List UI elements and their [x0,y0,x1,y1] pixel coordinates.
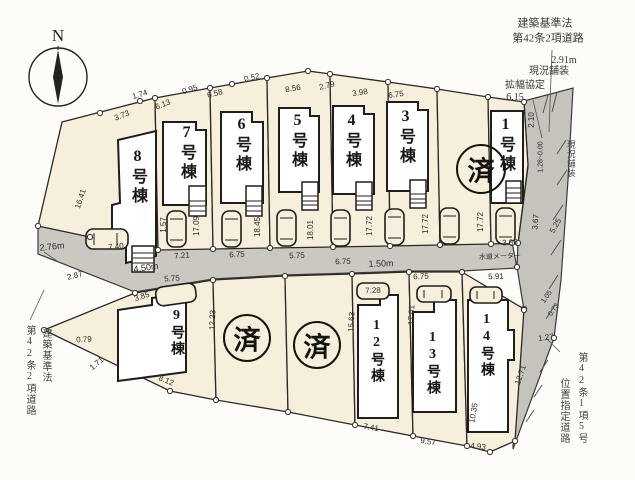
dim-label: 1.28~0.00 [538,141,545,172]
road-width-label: 1.50m [368,259,393,269]
lot-label-9: 9号棟 [169,308,183,357]
car-icon-4 [331,210,350,246]
dim-label: 6.75 [229,251,245,260]
road-width-label: 2.91m [551,56,576,66]
road-surface-label: 現況舗装 [529,67,569,77]
road-surface-label: 現況舗装 [566,140,575,210]
sold-stamp: 済 [234,319,261,358]
lot-label-4: 4号棟 [343,112,359,170]
lot-label-6: 6号棟 [233,116,249,174]
dim-label: 1.57 [160,217,168,233]
lot-label-5: 5号棟 [289,112,305,170]
lot-label-1: 1号棟 [497,116,513,174]
car-icon-14 [470,287,502,303]
dim-label: 0.79 [76,335,92,344]
car-icon-7 [167,211,186,247]
lot-label-14: 14号棟 [479,312,493,378]
road-law-label: 建築基準法 [518,19,573,30]
road-law-label: 建築基準法 [40,328,51,403]
dim-label: 17.72 [477,212,485,232]
compass-n-label: N [52,26,64,46]
dim-label: 7.28 [365,287,381,296]
lot-label-13: 13号棟 [425,330,439,396]
dim-label: 15.63 [347,312,356,332]
dim-label: 3.85 [502,238,518,247]
dim-label: 12.23 [209,310,218,330]
dim-label: 7.40 [108,242,124,252]
dim-label: 17.72 [366,216,374,236]
dim-label: 18.01 [307,220,315,240]
dim-label: 5.91 [488,273,504,282]
lot-label-7: 7号棟 [178,124,194,182]
road-widen-value: 6.15 [506,93,524,103]
dim-label: 17.72 [422,214,430,234]
dim-label: 4.93 [470,442,486,452]
road-law-label: 第42条2項道路 [24,325,35,430]
dim-label: 6.75 [335,258,351,267]
road-law-label: 位置指定道路 [558,378,569,478]
car-icon-2 [440,208,459,244]
dim-label: 17.01 [408,305,417,325]
car-icon-13 [417,286,451,302]
road-widen-label: 拡幅協定 [505,81,545,91]
car-icon-5 [277,210,296,246]
lot-label-8: 8号棟 [129,148,145,206]
dim-label: 17.09 [193,216,201,236]
dim-label: 3.67 [531,214,540,230]
compass-icon [29,46,87,106]
dim-label: 5.75 [289,252,305,261]
dim-label: 6.75 [413,273,429,282]
road-law-label: 第42条2項道路 [512,34,584,45]
dim-label: 5.75 [164,274,180,283]
dim-label: 7.21 [174,251,190,260]
road-note-label: 水道メーター [479,253,521,261]
car-icon-3 [385,209,404,245]
sold-stamp: 済 [468,150,495,189]
car-icon-6 [222,211,241,247]
lot-label-12: 12号棟 [369,318,383,384]
road-law-label: 第42条1項5号 [576,352,587,470]
sold-stamp: 済 [304,326,331,365]
site-plan: N 8号棟 7号棟 6号棟 5号棟 4号棟 3号棟 1号棟 9号棟 12号棟 1… [0,0,635,480]
dim-label: 2.10 [528,112,536,128]
dim-label: 18.45 [254,217,262,237]
lot-label-3: 3号棟 [397,108,413,166]
